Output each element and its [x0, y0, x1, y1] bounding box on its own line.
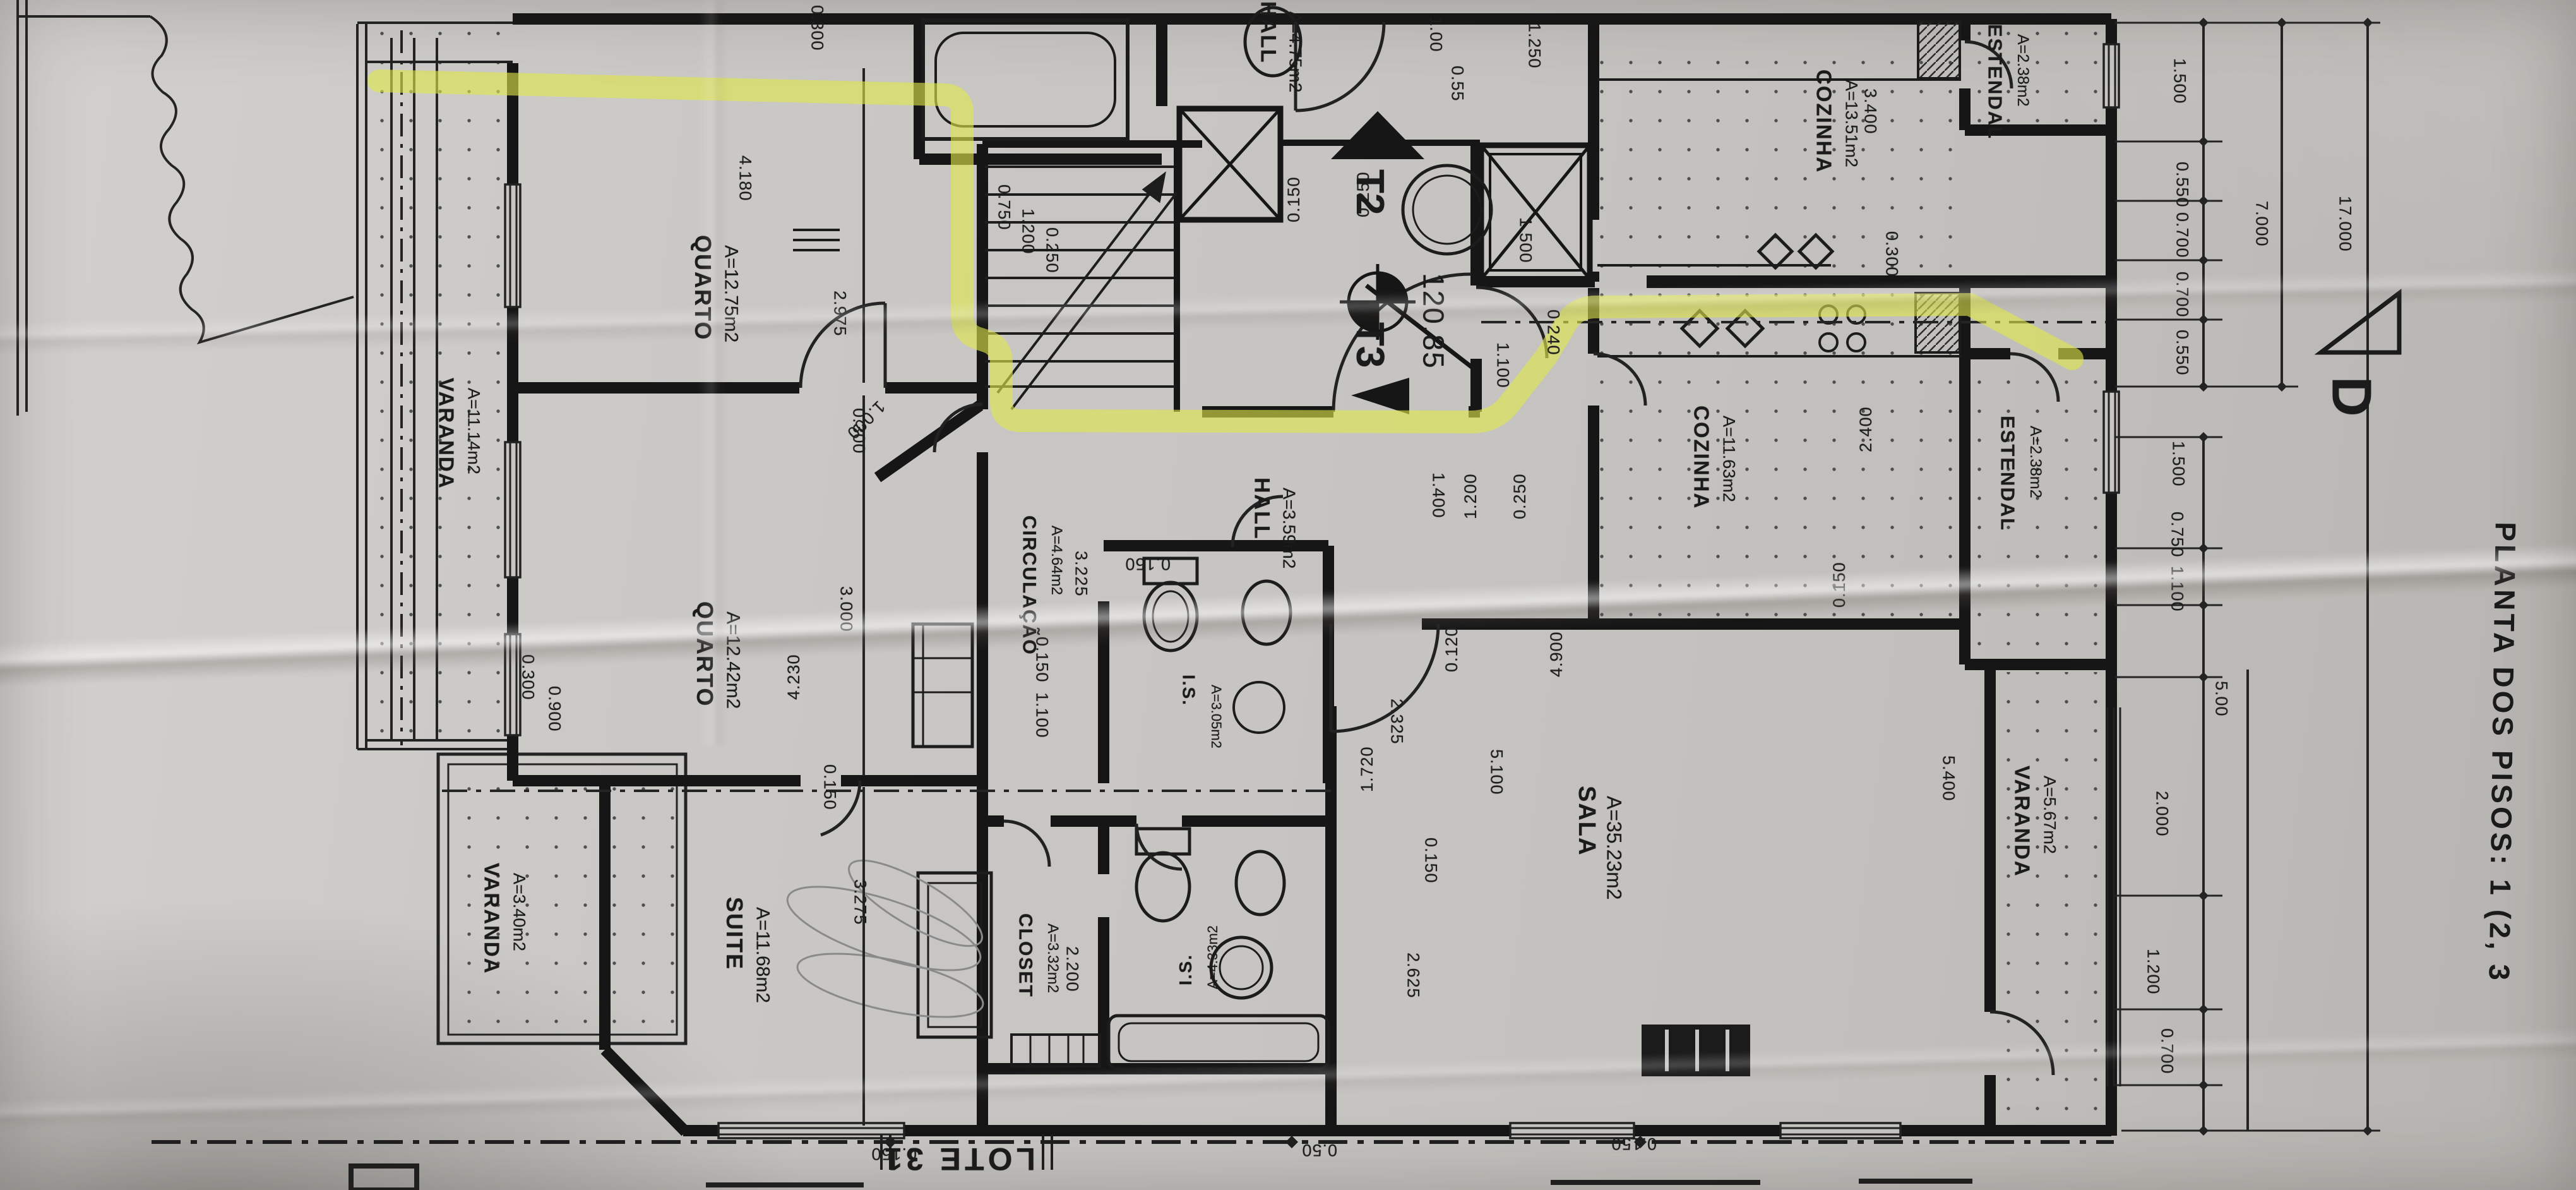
neighbor-outline: [18, 0, 354, 416]
dim-label: 3.225: [1071, 551, 1091, 597]
room-name: HALL: [1249, 478, 1273, 540]
room-name: HALL: [1255, 1, 1280, 64]
room-name: SUITE: [721, 897, 748, 970]
dim-label: 1.500: [2170, 58, 2190, 104]
dim-label: 0.700: [2173, 212, 2192, 258]
room-area: A=35.23m2: [1602, 796, 1625, 900]
room-area: A=2.38m2: [2013, 34, 2032, 107]
room-area: A=12.42m2: [722, 611, 744, 709]
dim-label: 0.750: [994, 184, 1014, 231]
dim-label: 1.500: [2169, 441, 2188, 487]
cut-off-lower-drawing: [351, 1166, 1972, 1190]
dim-label: 1.200: [1461, 473, 1481, 519]
room-name: SALA: [1573, 786, 1600, 856]
bidet: [1243, 581, 1291, 644]
dim-label: 1.100: [2168, 566, 2187, 612]
toilet: [1136, 853, 1190, 921]
room-name: QUARTO: [691, 601, 718, 707]
dim-label: 0.700: [2157, 1028, 2177, 1074]
revision-cloud: [150, 16, 354, 342]
section-letter: D: [2320, 376, 2384, 417]
dim-label: 3.000: [837, 586, 856, 632]
room-area: A=4.75m2: [1285, 11, 1306, 92]
marker-t3-label: T3: [1347, 322, 1392, 368]
dim-label: 0.150: [820, 764, 840, 810]
dim-label: 0.300: [1882, 231, 1902, 277]
room-name: VARANDA: [434, 378, 458, 490]
dim-label: 0.120: [1442, 626, 1462, 672]
room-name: QUARTO: [689, 235, 716, 340]
radiator: [793, 230, 840, 250]
dim-label: 4.180: [736, 155, 755, 201]
dim-label: 2.000: [2152, 791, 2172, 837]
dim-label: 2.400: [1856, 406, 1876, 452]
dim-label: 2.625: [1404, 953, 1423, 999]
room-name: ESTENDAL: [1996, 416, 2018, 531]
dim-label: 2.975: [830, 291, 850, 337]
dim-label: 2.200: [1063, 946, 1082, 992]
sheet-title: PLANTA DOS PISOS: 1 (2, 3: [2482, 522, 2522, 983]
dim-label: 0.250: [1042, 227, 1062, 273]
room-area: A=11.68m2: [752, 907, 773, 1003]
dim-label: 0.150: [1032, 637, 1052, 683]
dim-label: 17.000: [2335, 196, 2355, 252]
room-area: A=3.40m2: [510, 873, 529, 951]
room-area: A=11.63m2: [1719, 416, 1739, 502]
appliance: [1918, 21, 1960, 78]
room-name: VARANDA: [2010, 766, 2034, 877]
dim-label: 1.400: [1429, 472, 1448, 519]
room-area: A=2.38m2: [2026, 426, 2044, 498]
dim-label: 0.250: [1510, 473, 1530, 519]
room-area: A=4.64m2: [1047, 526, 1065, 595]
dim-label: 0.550: [2173, 330, 2192, 376]
dim-label: 0.900: [545, 686, 564, 732]
dim-label: 1.00: [1426, 16, 1446, 52]
room-name: COZINHA: [1811, 69, 1835, 173]
room-area: A=3.05m2: [1208, 685, 1224, 748]
dim-label: 0.750: [2168, 512, 2187, 558]
dim-label: 1.100: [1493, 342, 1513, 388]
dim-label: 0.300: [518, 654, 538, 700]
dim-label: 4.230: [784, 654, 804, 700]
dim-label: 0.240: [1544, 310, 1563, 356]
dim-label: 0.150: [1284, 176, 1304, 222]
t2-arrow: [1331, 111, 1424, 159]
dim-label: 0.150: [871, 1144, 917, 1163]
dim-label: 1.100: [1032, 692, 1052, 738]
room-name: I.S.: [1176, 954, 1196, 985]
dim-label: 0.700: [2173, 272, 2192, 318]
dim-label: 5.00: [2212, 681, 2231, 717]
sala-builtin: [1642, 1025, 1750, 1076]
stairs: [985, 167, 1178, 409]
dim-label: 1.720: [1357, 746, 1377, 792]
washbasin: [1234, 682, 1284, 733]
dim-label: 0.150: [1830, 562, 1849, 608]
wardrobe: [913, 624, 972, 747]
dim-label: 5.400: [1939, 755, 1959, 802]
room-area: A=3.32m2: [1044, 923, 1061, 993]
dim-label: 7.000: [2252, 201, 2272, 247]
dim-label: 0.250: [1354, 171, 1373, 217]
dim-label: 5.100: [1487, 749, 1506, 795]
bidet: [1236, 851, 1284, 915]
floor-plan-photo: PLANTA DOS PISOS: 1 (2, 3 T2 T3 120.85 D…: [0, 0, 2576, 1190]
dim-label: 0.50: [1301, 1140, 1337, 1160]
room-name: CLOSET: [1015, 913, 1036, 998]
dim-label: 1.200: [2144, 949, 2163, 995]
dim-label: 0.55: [1448, 66, 1467, 102]
room-area: A=3.59m2: [1279, 488, 1299, 568]
dim-label: 0.550: [2173, 162, 2192, 208]
t3-arrow: [1351, 378, 1409, 414]
room-area: A=5.67m2: [2040, 776, 2060, 854]
dim-label: 0.150: [1421, 838, 1441, 884]
dim-label: 0.150: [1124, 554, 1171, 574]
closet-shelves: [1011, 1035, 1100, 1066]
level-value: 120.85: [1417, 273, 1451, 370]
dim-label: 1.200: [1018, 208, 1038, 255]
room-area: A=13.51m2: [1842, 80, 1861, 167]
room-area: A=4.33m2: [1205, 925, 1221, 989]
dim-label: 3.275: [850, 879, 870, 925]
room-name: COZINHA: [1689, 406, 1713, 509]
dim-label: 1.500: [1516, 217, 1535, 263]
room-area: A=12.75m2: [720, 245, 742, 342]
room-name: I.S.: [1179, 675, 1199, 706]
dim-ticks: [2198, 18, 2373, 1136]
dim-label: 0.300: [808, 5, 827, 51]
dim-label: 0.150: [1611, 1134, 1657, 1153]
room-name: VARANDA: [479, 863, 503, 975]
dim-label: 4.900: [1547, 631, 1566, 677]
lot-boundary: [152, 1134, 2114, 1190]
dim-label: 1.250: [1525, 23, 1544, 69]
room-area: A=11.14m2: [464, 388, 484, 474]
dim-label: 3.400: [1861, 88, 1880, 135]
dim-label: 2.325: [1387, 699, 1407, 745]
section-cut-triangle: [2321, 293, 2399, 352]
room-name: ESTENDAL: [1983, 24, 2006, 140]
room-name: CIRCULAÇÃO: [1018, 515, 1040, 656]
